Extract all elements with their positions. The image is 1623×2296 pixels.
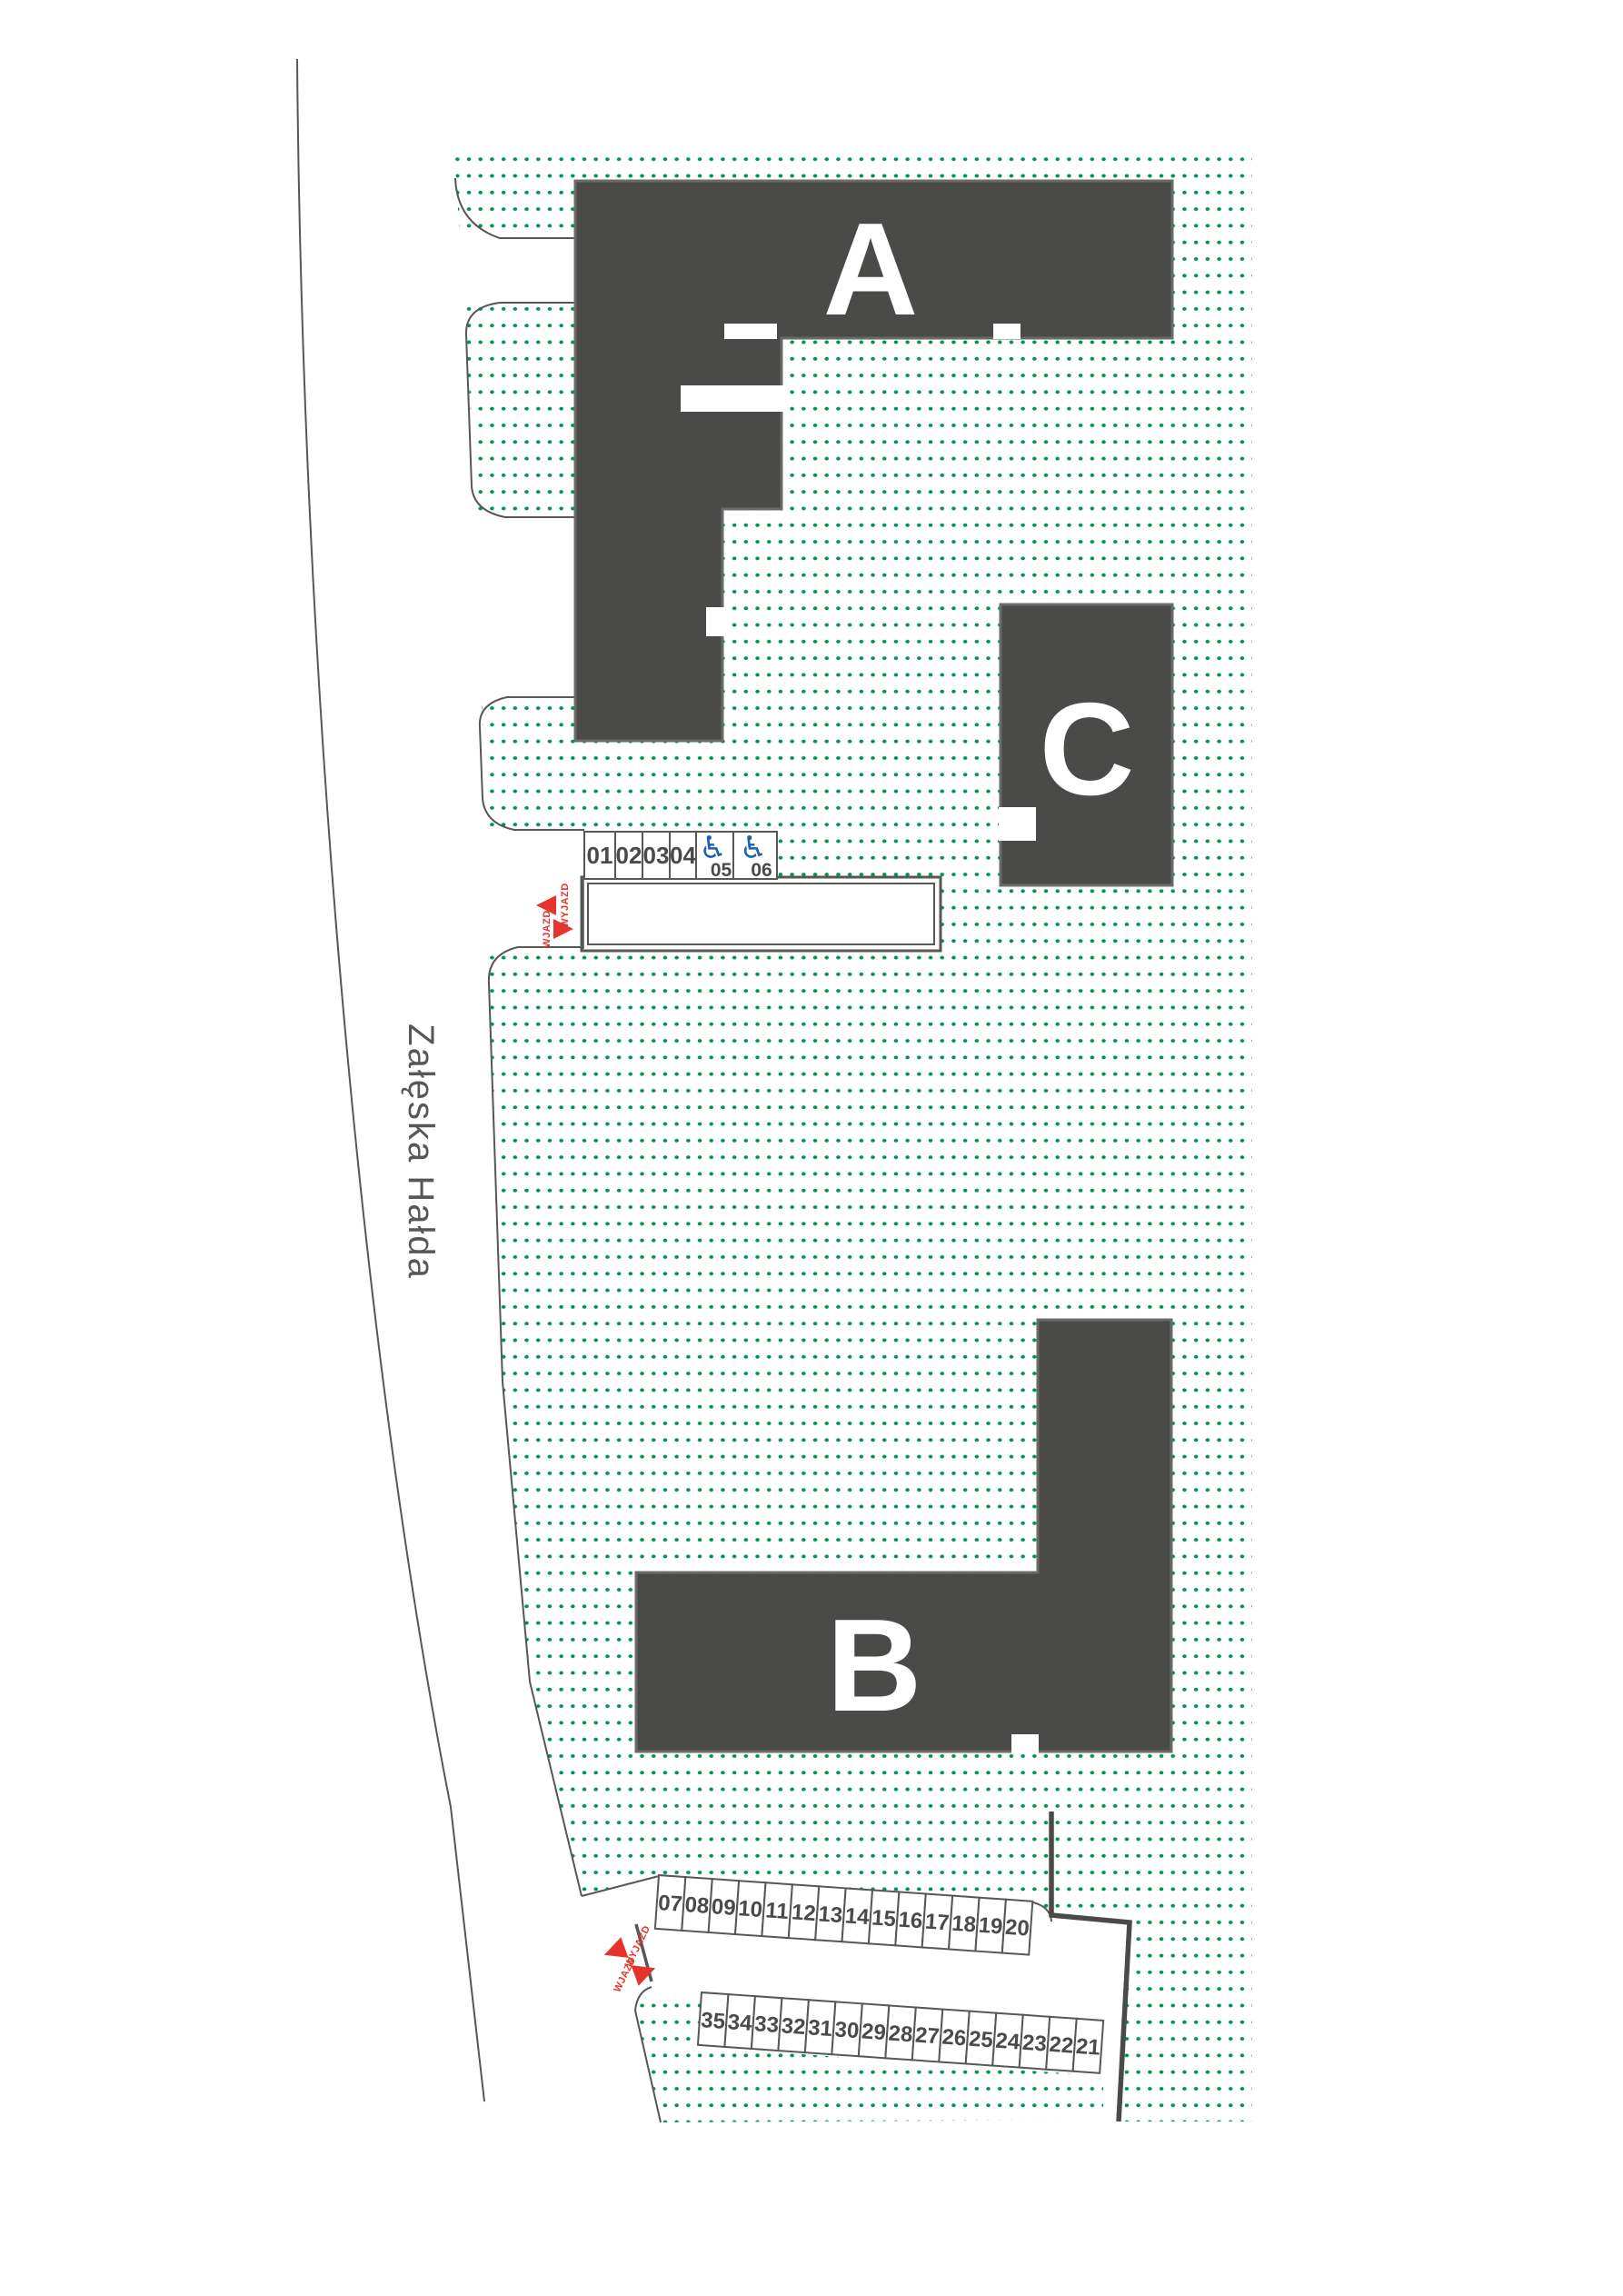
stall-number: 11 [764, 1898, 789, 1924]
stall-number: 27 [914, 2023, 941, 2050]
stall-number: 15 [871, 1905, 897, 1932]
parking-stall: 09 [709, 1879, 739, 1934]
parking-stall: 11 [762, 1882, 792, 1938]
building-b-notch [1011, 1734, 1039, 1753]
stall-number: 30 [834, 2017, 861, 2043]
stall-number: 17 [924, 1910, 951, 1936]
stall-number: 24 [995, 2029, 1021, 2055]
parking-stall: 31 [805, 2000, 836, 2054]
parking-stall: 20 [1002, 1900, 1032, 1955]
parking-row-top: 01020304♿05♿06 [584, 830, 777, 881]
stall-number: 16 [898, 1908, 924, 1934]
stall-number: 23 [1021, 2031, 1048, 2057]
stall-number: 04 [670, 842, 696, 869]
stall-number: 34 [727, 2010, 753, 2036]
building-c-label: C [1040, 675, 1135, 823]
stall-number: 02 [616, 842, 642, 869]
parking-stall: 25 [966, 2011, 997, 2066]
stall-number: 35 [700, 2008, 726, 2034]
parking-stall: 33 [752, 1996, 782, 2051]
stall-number: 03 [643, 842, 670, 869]
parking-stall: 18 [949, 1896, 979, 1952]
street-line [297, 59, 484, 2101]
building-a-notch-channel [681, 385, 783, 412]
building-c: C [999, 604, 1172, 885]
parking-stall: 29 [859, 2003, 890, 2058]
internal-road [582, 877, 941, 951]
stall-number: 08 [684, 1892, 711, 1919]
site-plan-drawing: A C B 01020304♿05♿06 0708091011121314151… [0, 0, 1623, 2296]
parking-stall: 17 [922, 1894, 952, 1950]
building-a-notch-wing [706, 607, 726, 636]
parking-stall: 07 [655, 1875, 685, 1931]
stall-number: 21 [1075, 2034, 1101, 2061]
stall-number: 31 [807, 2015, 833, 2041]
stall-number: 05 [711, 860, 732, 881]
stall-number: 12 [791, 1900, 817, 1926]
parking-stall: 24 [992, 2013, 1023, 2068]
parking-stall: 23 [1020, 2015, 1050, 2070]
building-a-notch-bar2 [993, 324, 1021, 339]
parking-stall: ♿06 [733, 830, 777, 881]
parking-entrance-arrows: WYJAZD WJAZD [601, 1924, 660, 1994]
stall-number: 06 [751, 860, 772, 881]
parking-stall: 22 [1046, 2017, 1077, 2071]
parking-stall: 01 [584, 832, 615, 879]
stall-number: 29 [861, 2019, 887, 2045]
parking-stall: 14 [842, 1888, 872, 1943]
site-plan-page: A C B 01020304♿05♿06 0708091011121314151… [0, 0, 1623, 2296]
parking-stall: 19 [975, 1898, 1005, 1953]
parking-stall: 21 [1073, 2019, 1104, 2073]
parking-stall: 30 [831, 2002, 862, 2056]
stall-number: 01 [587, 842, 613, 869]
stall-number: 33 [753, 2011, 780, 2038]
exit-arrow-label: WYJAZD [560, 883, 571, 927]
parking-stall: ♿05 [696, 830, 733, 881]
stall-number: 26 [941, 2025, 968, 2051]
building-a-label: A [823, 195, 919, 343]
parking-stall: 28 [885, 2005, 916, 2060]
stall-number: 18 [951, 1912, 977, 1938]
parking-stall: 35 [698, 1992, 729, 2047]
driveway-upper [413, 238, 575, 303]
parking-stall: 27 [912, 2007, 943, 2061]
parking-stall: 32 [778, 1998, 809, 2052]
stall-number: 25 [968, 2027, 994, 2053]
parking-entry-arrow-label: WJAZD [612, 1955, 638, 1994]
parking-stall: 34 [724, 1994, 755, 2049]
stall-number: 07 [657, 1891, 683, 1917]
building-a-notch-bar1 [724, 324, 777, 339]
parking-stall: 08 [682, 1877, 712, 1932]
stall-number: 22 [1049, 2032, 1075, 2059]
parking-stall: 04 [670, 832, 696, 879]
stall-number: 10 [737, 1896, 763, 1922]
driveway-lower [413, 517, 575, 697]
stall-number: 28 [888, 2021, 914, 2047]
stall-number: 14 [844, 1903, 871, 1930]
parking-stall: 12 [789, 1884, 819, 1940]
parking-stall: 26 [939, 2010, 970, 2064]
parking-stall: 16 [895, 1892, 925, 1947]
stall-number: 20 [1004, 1915, 1031, 1942]
stall-number: 19 [978, 1913, 1004, 1940]
street-name-label: Załęska Hałda [401, 1023, 441, 1280]
building-b-label: B [827, 1592, 922, 1739]
stall-number: 13 [818, 1902, 844, 1928]
parking-stall: 15 [869, 1890, 899, 1945]
stall-number: 32 [781, 2013, 807, 2040]
parking-stall: 10 [735, 1881, 765, 1936]
parking-stall: 02 [615, 832, 642, 879]
parking-stall: 03 [642, 832, 670, 879]
entry-arrow-label: WJAZD [542, 910, 553, 948]
building-c-notch [999, 807, 1036, 841]
parking-stall: 13 [815, 1886, 845, 1942]
stall-number: 09 [711, 1894, 737, 1921]
